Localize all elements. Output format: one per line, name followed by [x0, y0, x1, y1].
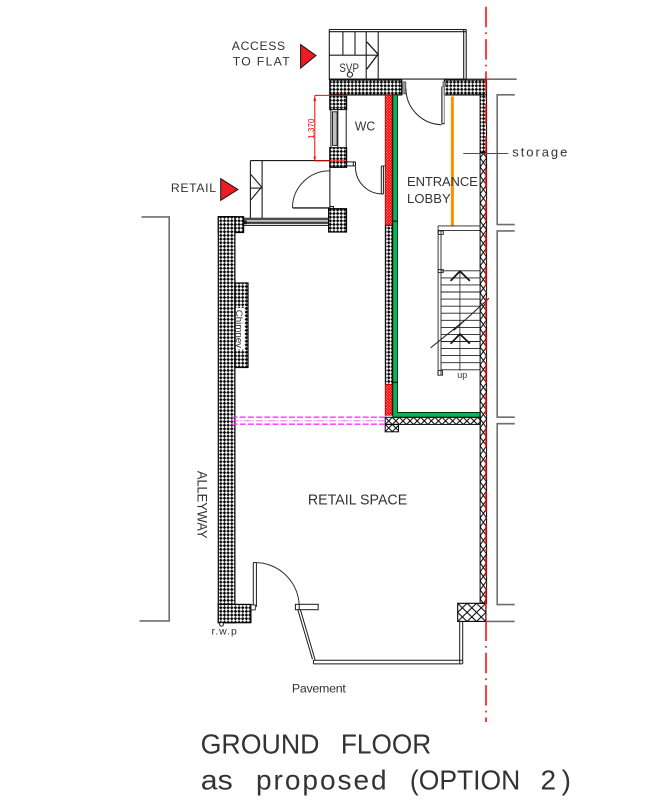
svg-text:as: as — [201, 764, 233, 795]
svg-text:(OPTION: (OPTION — [410, 764, 520, 795]
svg-text:SVP: SVP — [339, 61, 359, 75]
svg-text:FLOOR: FLOOR — [341, 728, 431, 759]
svg-text:RETAIL: RETAIL — [171, 181, 216, 195]
svg-text:ALLEYWAY: ALLEYWAY — [195, 471, 210, 539]
svg-text:ACCESS: ACCESS — [232, 39, 285, 53]
svg-text:ENTRANCE: ENTRANCE — [407, 174, 478, 189]
svg-text:proposed: proposed — [256, 764, 387, 795]
svg-text:2): 2) — [541, 764, 572, 795]
svg-text:r.w.p: r.w.p — [212, 625, 237, 637]
svg-text:LOBBY: LOBBY — [407, 191, 451, 206]
svg-text:Chimney: Chimney — [233, 310, 244, 348]
svg-text:TO FLAT: TO FLAT — [233, 54, 291, 68]
svg-text:Pavement: Pavement — [292, 682, 346, 696]
svg-text:GROUND: GROUND — [201, 728, 320, 759]
svg-text:1.370: 1.370 — [307, 118, 316, 139]
svg-text:WC: WC — [355, 118, 375, 133]
svg-text:up: up — [457, 370, 467, 380]
svg-text:RETAIL SPACE: RETAIL SPACE — [308, 493, 408, 509]
